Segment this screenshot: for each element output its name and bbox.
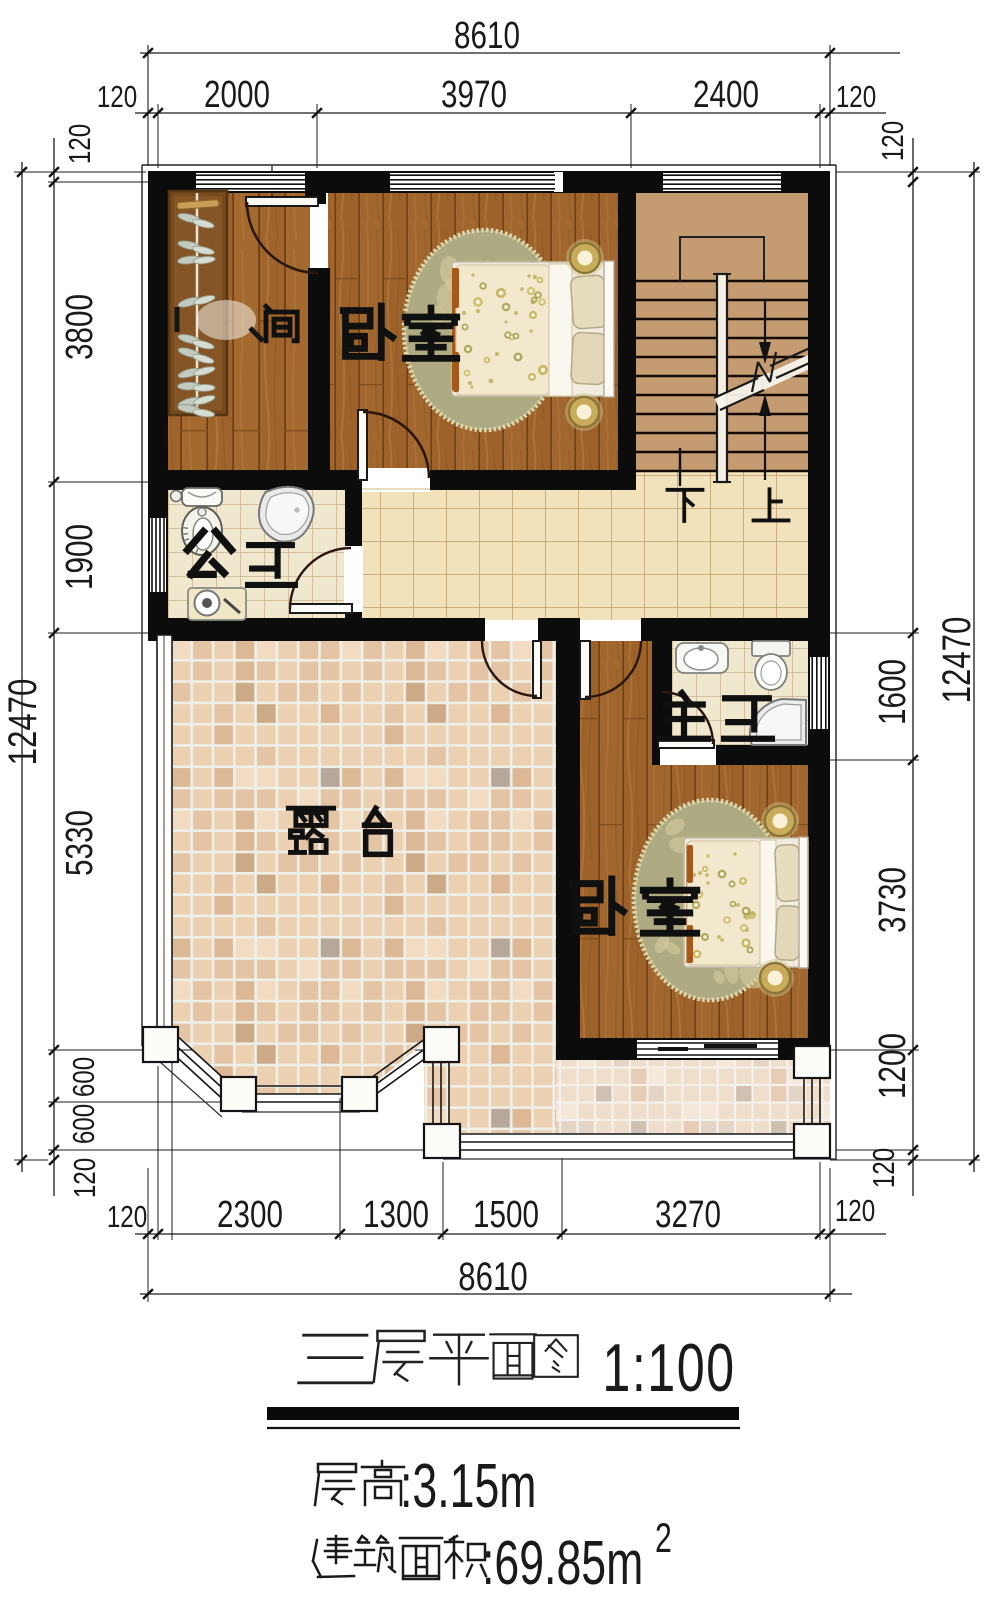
svg-text:120: 120 [835, 1193, 875, 1228]
svg-text:12470: 12470 [0, 679, 45, 766]
svg-text:1900: 1900 [59, 524, 101, 590]
svg-text:120: 120 [67, 1158, 102, 1198]
svg-text:600: 600 [66, 1104, 101, 1144]
svg-text::69.85m: :69.85m [482, 1529, 643, 1598]
svg-text:1500: 1500 [473, 1194, 539, 1236]
svg-text:1600: 1600 [872, 659, 914, 725]
svg-text:120: 120 [866, 1148, 901, 1188]
svg-text::3.15m: :3.15m [400, 1452, 536, 1521]
svg-text:3970: 3970 [441, 74, 507, 116]
svg-text:5330: 5330 [59, 810, 101, 876]
svg-text:120: 120 [875, 121, 910, 161]
svg-text:1:100: 1:100 [602, 1330, 735, 1406]
svg-text:12470: 12470 [934, 617, 979, 704]
svg-text:120: 120 [97, 79, 137, 114]
svg-text:8610: 8610 [458, 1254, 527, 1299]
svg-text:600: 600 [66, 1057, 101, 1097]
svg-text:2400: 2400 [693, 74, 759, 116]
svg-text:120: 120 [107, 1199, 147, 1234]
svg-text:2300: 2300 [217, 1194, 283, 1236]
svg-text:2000: 2000 [204, 74, 270, 116]
svg-text:1200: 1200 [872, 1033, 914, 1099]
svg-text:1300: 1300 [363, 1194, 429, 1236]
svg-text:8610: 8610 [454, 15, 520, 57]
svg-text:120: 120 [836, 79, 876, 114]
svg-text:3270: 3270 [655, 1194, 721, 1236]
svg-text:2: 2 [655, 1514, 672, 1561]
svg-text:120: 120 [62, 124, 97, 164]
svg-text:3730: 3730 [872, 867, 914, 933]
svg-text:3800: 3800 [59, 294, 101, 360]
